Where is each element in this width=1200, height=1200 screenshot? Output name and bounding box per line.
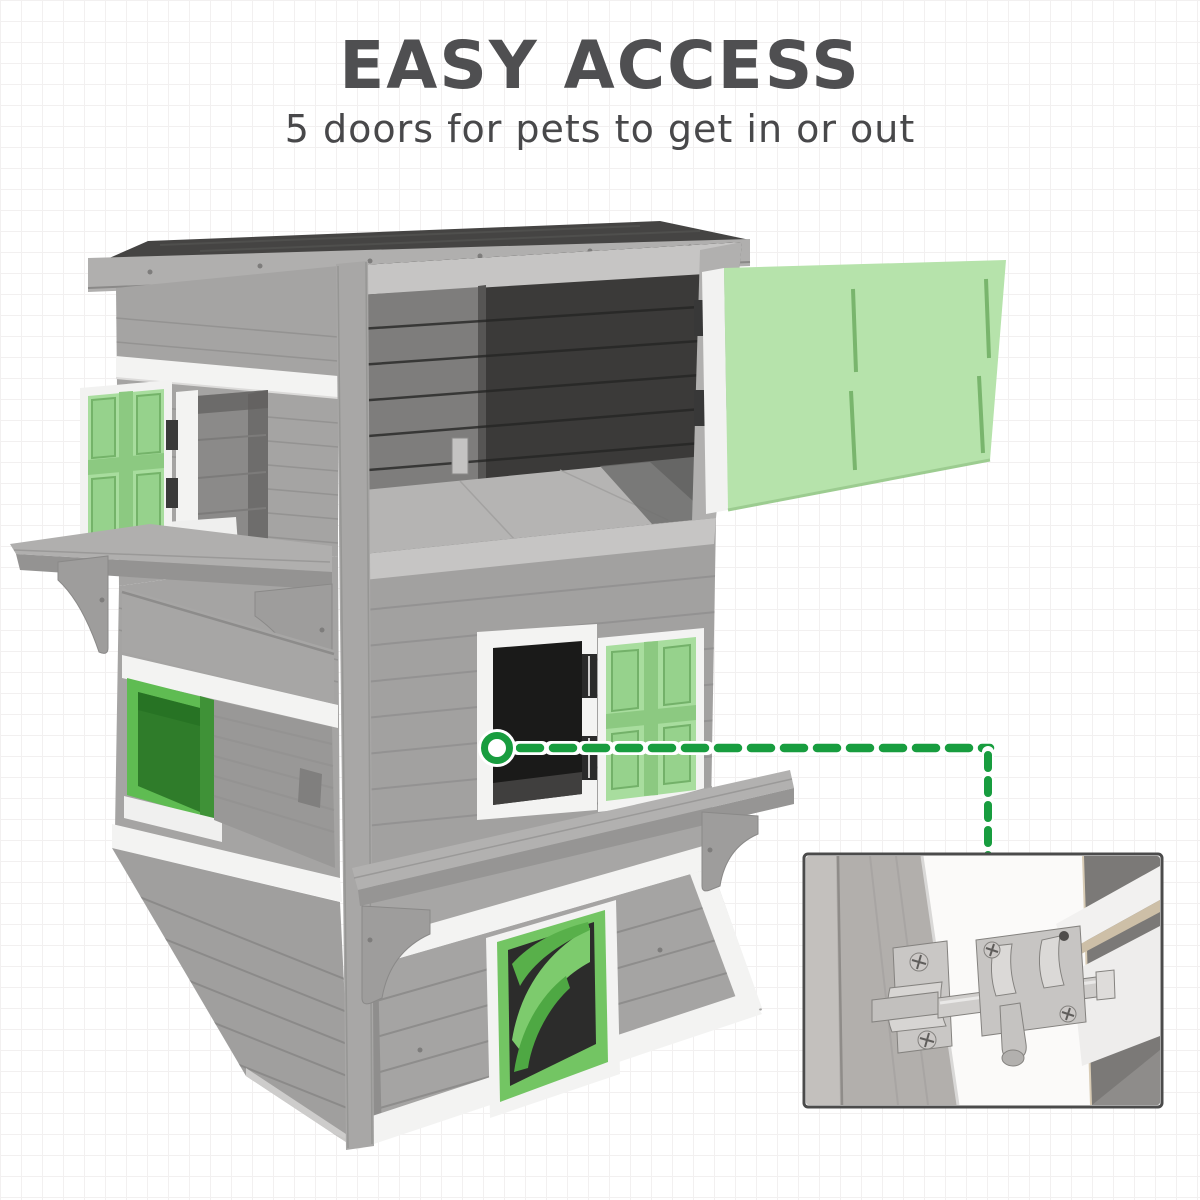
page-subtitle: 5 doors for pets to get in or out [0,107,1200,151]
callout-ring-icon [485,736,510,761]
bottom-door [486,900,620,1118]
shutter-hinge-icon [166,420,178,450]
header: EASY ACCESS 5 doors for pets to get in o… [0,0,1200,151]
top-tier-interior [344,242,742,556]
top-window-shutter [80,380,178,548]
latch-detail-inset [804,854,1162,1107]
shutter-hinge-icon [166,478,178,508]
roof-door-open [692,242,1006,522]
shelf-corbel [58,556,108,653]
middle-door [477,624,597,820]
middle-door-shutter [598,628,704,812]
side-opening-window [124,678,222,842]
product-illustration [0,0,1200,1200]
page-title: EASY ACCESS [0,30,1200,103]
page: EASY ACCESS 5 doors for pets to get in o… [0,0,1200,1200]
